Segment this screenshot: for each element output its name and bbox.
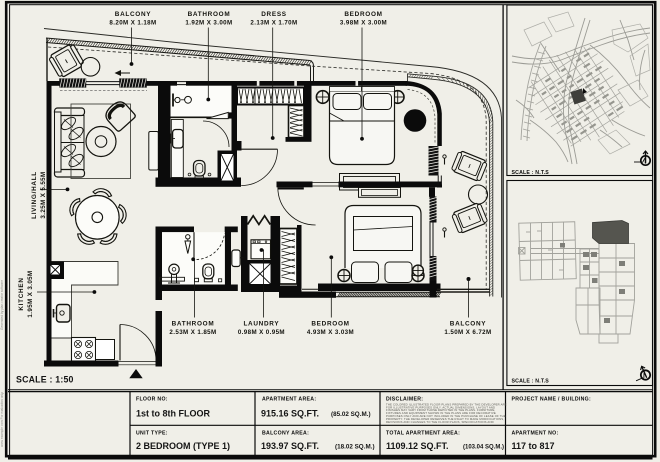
- svg-text:APARTMENT AREA:: APARTMENT AREA:: [262, 397, 316, 403]
- svg-text:PROJECT NAME / BUILDING:: PROJECT NAME / BUILDING:: [512, 397, 592, 403]
- svg-text:LIVING/HALL: LIVING/HALL: [31, 171, 38, 219]
- svg-text:SCALE : N.T.S: SCALE : N.T.S: [512, 378, 550, 384]
- svg-text:LAUNDRY: LAUNDRY: [243, 321, 279, 328]
- svg-text:www example com For evaluati: www example com For evaluation only.: [0, 392, 4, 447]
- svg-text:3.25M X 5.55M: 3.25M X 5.55M: [40, 171, 47, 218]
- svg-text:2 BEDROOM (TYPE 1): 2 BEDROOM (TYPE 1): [136, 441, 230, 451]
- svg-text:Generated by plan creator soft: Generated by plan creator software: [0, 280, 4, 330]
- svg-text:0.98M X 0.95M: 0.98M X 0.95M: [238, 329, 285, 336]
- svg-text:(103.04 SQ.M.): (103.04 SQ.M.): [463, 445, 504, 451]
- svg-text:193.97 SQ.FT.: 193.97 SQ.FT.: [261, 441, 319, 451]
- svg-text:UNIT TYPE:: UNIT TYPE:: [136, 431, 168, 437]
- svg-text:KITCHEN: KITCHEN: [18, 277, 25, 310]
- svg-text:BALCONY: BALCONY: [450, 321, 487, 328]
- svg-text:BEDROOM: BEDROOM: [311, 321, 349, 328]
- svg-text:TOTAL APARTMENT AREA:: TOTAL APARTMENT AREA:: [386, 431, 460, 437]
- svg-text:SCALE : 1:50: SCALE : 1:50: [16, 375, 74, 385]
- svg-text:(18.02 SQ.M.): (18.02 SQ.M.): [335, 444, 375, 451]
- svg-text:1.92M X 3.00M: 1.92M X 3.00M: [185, 20, 232, 27]
- svg-text:3.98M X 3.00M: 3.98M X 3.00M: [340, 20, 387, 27]
- svg-text:BATHROOM: BATHROOM: [188, 11, 231, 18]
- svg-text:1st to 8th FLOOR: 1st to 8th FLOOR: [136, 409, 211, 419]
- svg-text:FLOOR NO:: FLOOR NO:: [136, 397, 168, 403]
- svg-text:915.16 SQ.FT.: 915.16 SQ.FT.: [261, 409, 319, 419]
- svg-text:1.50M X 6.72M: 1.50M X 6.72M: [444, 329, 491, 336]
- svg-text:BALCONY: BALCONY: [115, 11, 152, 18]
- svg-text:117 to 817: 117 to 817: [512, 441, 555, 451]
- svg-text:8.20M X 1.18M: 8.20M X 1.18M: [109, 20, 156, 27]
- svg-text:2.13M X 1.70M: 2.13M X 1.70M: [250, 20, 297, 27]
- svg-text:4.93M X 3.03M: 4.93M X 3.03M: [307, 329, 354, 336]
- svg-text:(85.02 SQ.M.): (85.02 SQ.M.): [331, 411, 371, 418]
- svg-text:SCALE : N.T.S: SCALE : N.T.S: [512, 170, 550, 176]
- svg-text:APARTMENT NO:: APARTMENT NO:: [512, 431, 559, 437]
- svg-text:BALCONY AREA:: BALCONY AREA:: [262, 431, 309, 437]
- svg-text:1109.12 SQ.FT.: 1109.12 SQ.FT.: [386, 441, 449, 451]
- svg-text:2.53M X 1.85M: 2.53M X 1.85M: [169, 329, 216, 336]
- svg-text:1.95M X 3.05M: 1.95M X 3.05M: [27, 270, 34, 317]
- svg-text:BEDROOM: BEDROOM: [344, 11, 382, 18]
- svg-text:DRESS: DRESS: [261, 11, 287, 18]
- svg-text:REVISIONS AND CHANGES TO THE F: REVISIONS AND CHANGES TO THE FLOOR PLANS…: [386, 420, 494, 424]
- svg-text:BATHROOM: BATHROOM: [172, 321, 215, 328]
